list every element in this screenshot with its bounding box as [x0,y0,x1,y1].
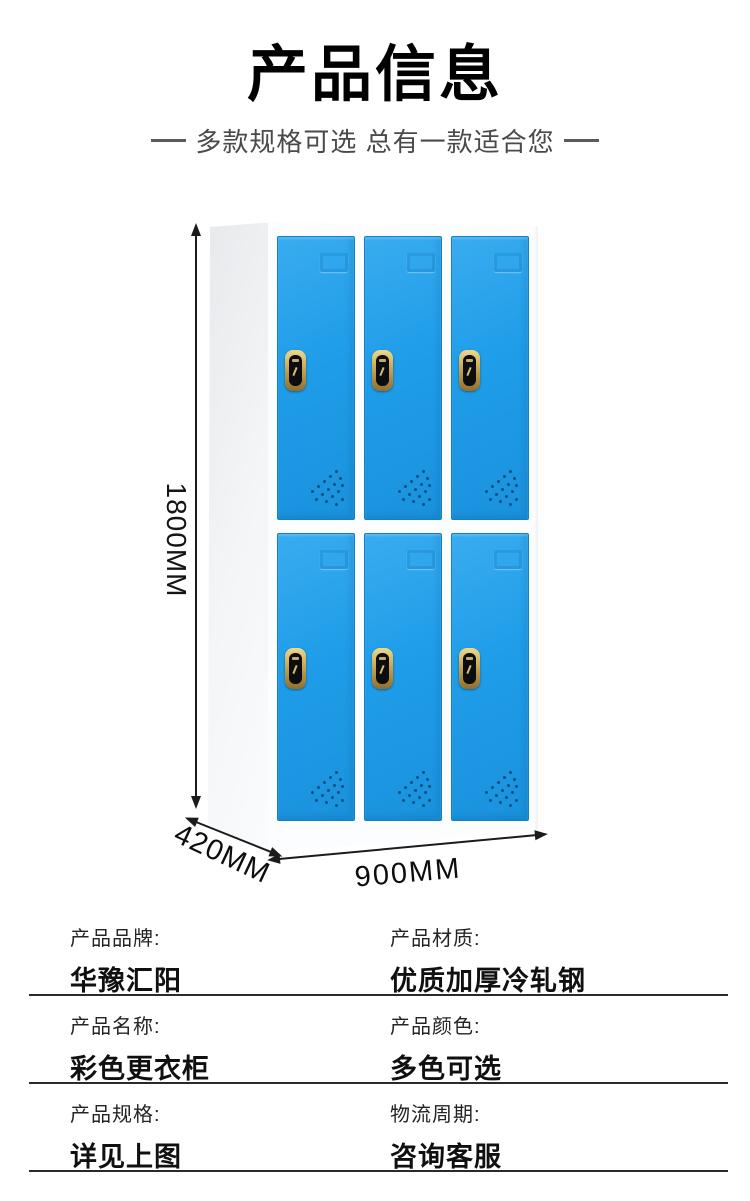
page-title: 产品信息 [0,24,750,113]
spec-row: 产品名称: 彩色更衣柜 产品颜色: 多色可选 [29,996,728,1084]
vent-holes [309,460,345,506]
spec-cell: 产品名称: 彩色更衣柜 [70,1010,390,1086]
lock-keypad [376,653,389,684]
spec-value: 详见上图 [70,1135,390,1174]
spec-cell: 产品品牌: 华豫汇阳 [70,922,390,998]
height-dimension-label: 1800MM [161,475,191,605]
locker-side-panel [206,220,276,854]
spec-label: 产品规格: [70,1098,390,1127]
spec-label: 产品颜色: [390,1010,728,1039]
spec-cell: 物流周期: 咨询客服 [390,1098,728,1174]
spec-value: 彩色更衣柜 [70,1047,390,1086]
spec-label: 产品名称: [70,1010,390,1039]
door-lock [372,648,393,689]
spec-value: 华豫汇阳 [70,959,390,998]
subtitle-text: 多款规格可选 总有一款适合您 [195,122,554,159]
card-slot [407,253,435,272]
product-figure: 1800MM [0,200,750,905]
locker-door [364,533,442,821]
lock-keypad [289,653,302,684]
vent-holes [309,761,345,807]
spec-value: 优质加厚冷轧钢 [390,959,728,998]
card-slot [407,550,435,569]
door-lock [285,350,306,391]
card-slot [494,253,522,272]
lock-keypad [463,355,476,386]
vent-holes [396,761,432,807]
subtitle-dash-right [564,139,599,142]
product-info-page: 产品信息 多款规格可选 总有一款适合您 1800MM [0,0,750,1201]
lock-keypad [463,653,476,684]
lock-keypad [376,355,389,386]
spec-label: 产品材质: [390,922,728,951]
spec-value: 咨询客服 [390,1135,728,1174]
locker-door [277,533,355,821]
door-lock [459,648,480,689]
spec-row: 产品品牌: 华豫汇阳 产品材质: 优质加厚冷轧钢 [29,908,728,996]
door-lock [372,350,393,391]
card-slot [320,550,348,569]
door-lock [285,648,306,689]
subtitle-dash-left [151,139,186,142]
spec-table: 产品品牌: 华豫汇阳 产品材质: 优质加厚冷轧钢 产品名称: 彩色更衣柜 产品颜… [29,908,728,1172]
locker-door [451,533,529,821]
locker-door [364,236,442,520]
spec-label: 产品品牌: [70,922,390,951]
height-dimension-arrow [195,235,197,797]
door-lock [459,350,480,391]
locker-door [451,236,529,520]
spec-cell: 产品颜色: 多色可选 [390,1010,728,1086]
vent-holes [483,761,519,807]
spec-cell: 产品材质: 优质加厚冷轧钢 [390,922,728,998]
locker-door [277,236,355,520]
vent-holes [483,460,519,506]
spec-row: 产品规格: 详见上图 物流周期: 咨询客服 [29,1084,728,1172]
locker-front [268,220,538,852]
spec-cell: 产品规格: 详见上图 [70,1098,390,1174]
lock-keypad [289,355,302,386]
width-dimension-label: 900MM [332,851,484,896]
spec-label: 物流周期: [390,1098,728,1127]
spec-value: 多色可选 [390,1047,728,1086]
card-slot [494,550,522,569]
subtitle: 多款规格可选 总有一款适合您 [0,122,750,159]
vent-holes [396,460,432,506]
card-slot [320,253,348,272]
